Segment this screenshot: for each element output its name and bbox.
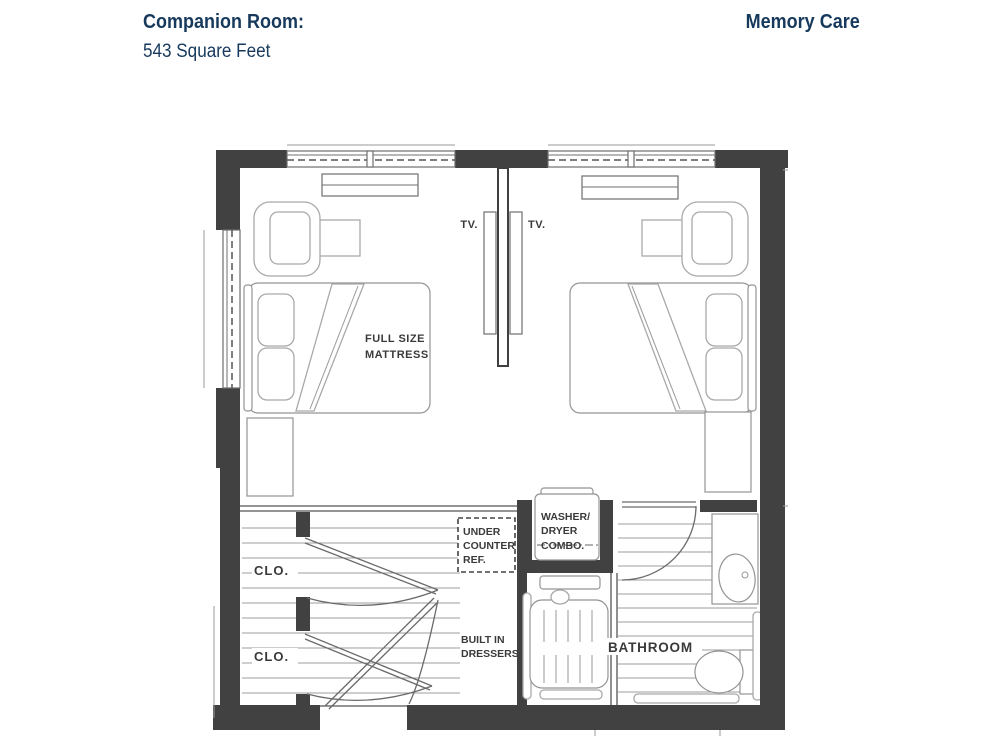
bed-right [570,283,756,413]
room-title: Companion Room: [143,11,304,34]
pillow [258,294,294,346]
closet-lower-label: CLO. [254,649,289,664]
shower [523,576,608,699]
floor-plan-page: Companion Room: 543 Square Feet Memory C… [0,0,1000,750]
closet-door-upper [305,538,438,605]
ref-label-line2: COUNTER [463,540,515,552]
closet-shelf-lines [242,528,460,693]
wall-shelf-left [322,174,418,196]
dressers-label-line1: BUILT IN [461,634,505,646]
grab-bar-bottom [634,694,739,703]
dressers-label-line2: DRESSERS [461,648,519,660]
under-counter-ref: UNDER COUNTER REF. [458,518,515,572]
shower-seat [530,600,608,688]
washer-label-line2: DRYER [541,525,578,537]
wall-shelf-right [582,176,678,199]
window-top-left [287,145,455,167]
tv-label-right: TV. [528,219,546,231]
footrest [642,220,684,256]
chest-right [705,412,751,492]
headboard-right [748,285,756,411]
tv-label-left: TV. [460,219,478,231]
window-top-right [548,145,715,167]
shower-grab-bar-bottom [540,690,602,699]
built-in-dressers: BUILT IN DRESSERS [461,634,519,660]
ref-label-line1: UNDER [463,526,501,538]
ref-label-line3: REF. [463,554,486,566]
shower-drain [551,590,569,604]
closet-upper-label: CLO. [254,563,289,578]
washer-label-line3: COMBO. [541,540,584,552]
bathroom-label: BATHROOM [608,640,693,655]
pillow [706,294,742,346]
footrest [318,220,360,256]
chair-seat [692,212,732,264]
tv-panel-right [510,212,522,334]
divider-wall [498,168,508,366]
chest-left [247,418,293,496]
closet-piers [296,512,310,706]
headboard-left [244,285,252,411]
room-area: 543 Square Feet [143,41,270,63]
tv-divider: TV. TV. [460,168,545,366]
tv-panel-left [484,212,496,334]
bed-left: FULL SIZE MATTRESS [244,283,430,413]
program-name: Memory Care [746,11,860,34]
closet-door-lower [305,634,432,700]
floor-plan: FULL SIZE MATTRESS [198,138,788,736]
toilet-bowl [695,651,743,693]
armchair-right [642,202,748,276]
washer-label-line1: WASHER/ [541,511,590,523]
pillow [258,348,294,400]
chair-seat [270,212,310,264]
armchair-left [254,202,360,276]
mattress-label-line1: FULL SIZE [365,333,425,345]
pillow [706,348,742,400]
bathroom-door [622,502,696,580]
washer-dryer: WASHER/ DRYER COMBO. [535,488,599,560]
mattress-label-line2: MATTRESS [365,349,429,361]
shower-ledge [540,576,600,589]
